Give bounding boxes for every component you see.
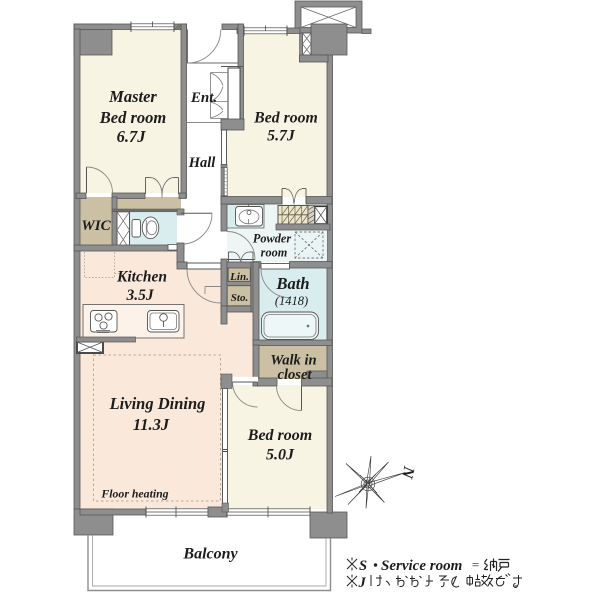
svg-text:11.3J: 11.3J <box>133 415 170 434</box>
svg-text:Bed room: Bed room <box>247 427 312 444</box>
svg-text:Ent.: Ent. <box>190 90 217 106</box>
svg-text:S: S <box>359 558 367 574</box>
svg-text:3.5J: 3.5J <box>125 287 154 304</box>
svg-text:J: J <box>358 575 367 591</box>
svg-text:6.7J: 6.7J <box>117 127 147 146</box>
svg-text:Bed room: Bed room <box>253 110 318 127</box>
svg-text:WIC: WIC <box>81 218 111 234</box>
svg-text:Bed room: Bed room <box>99 108 167 127</box>
svg-text:Balcony: Balcony <box>182 546 238 563</box>
svg-text:Master: Master <box>108 87 157 106</box>
svg-text:Powder: Powder <box>253 232 291 246</box>
svg-text:closet: closet <box>277 367 312 383</box>
svg-text:Sto.: Sto. <box>231 292 248 304</box>
svg-text:Service room: Service room <box>381 558 462 574</box>
svg-text:Kitchen: Kitchen <box>116 269 167 286</box>
svg-text:5.7J: 5.7J <box>267 128 296 145</box>
svg-text:(1418): (1418) <box>275 294 308 308</box>
svg-text:Bath: Bath <box>275 274 309 293</box>
svg-text:5.0J: 5.0J <box>266 447 295 464</box>
svg-text:=: = <box>471 557 480 572</box>
svg-text:Lin.: Lin. <box>229 271 249 283</box>
svg-text:Floor heating: Floor heating <box>100 487 168 501</box>
svg-text:room: room <box>261 246 288 260</box>
svg-text:Living Dining: Living Dining <box>109 394 206 413</box>
svg-text:Hall: Hall <box>188 155 216 171</box>
